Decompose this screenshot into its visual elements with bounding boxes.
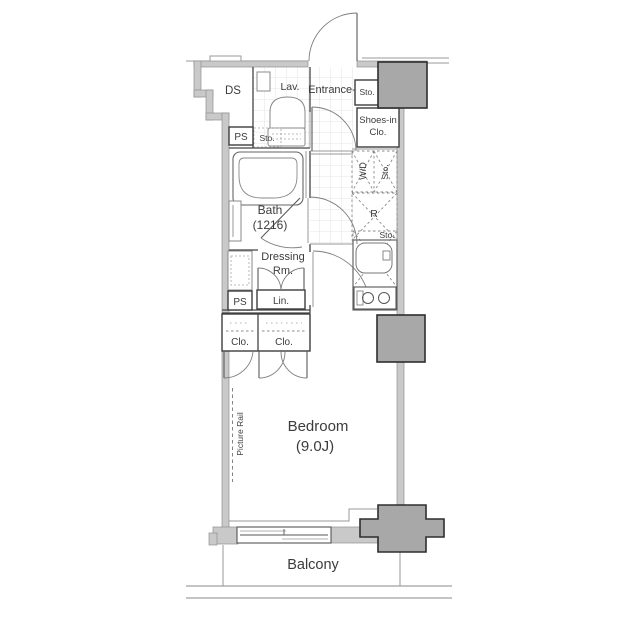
- stove-icon: [354, 287, 396, 309]
- label-closet-right: Clo.: [275, 337, 293, 348]
- bathtub-icon: [233, 152, 303, 205]
- label-ps-upper: PS: [234, 132, 248, 143]
- lav-shelf: [257, 72, 270, 91]
- floorplan-svg: DS PS Lav. Sto. Entrance- Sto. Shoes-in …: [0, 0, 640, 639]
- label-balcony: Balcony: [287, 557, 339, 573]
- label-linen: Lin.: [273, 296, 289, 307]
- label-shoes-line1: Shoes-in: [359, 115, 397, 126]
- label-dressing-line1: Dressing: [261, 251, 304, 263]
- label-bedroom-line2: (9.0J): [296, 438, 334, 455]
- pillar-top-right: [378, 62, 427, 108]
- label-wd-sto: Sto.: [380, 164, 390, 179]
- label-picture-rail: Picture Rail: [235, 412, 245, 456]
- label-bath-line1: Bath: [258, 203, 283, 217]
- label-entrance-sto: Sto.: [359, 87, 374, 97]
- label-wd: W/D: [358, 162, 368, 180]
- pillar-mid-right: [377, 315, 425, 362]
- label-bath-line2: (1216): [253, 218, 288, 232]
- label-shoes-line2: Clo.: [370, 127, 387, 138]
- label-ps-mid: PS: [233, 297, 247, 308]
- label-dressing-line2: Rm.: [273, 265, 293, 277]
- label-lav: Lav.: [280, 81, 299, 93]
- label-lav-sto: Sto.: [259, 133, 274, 143]
- label-kitchen-sto: Sto.: [379, 230, 394, 240]
- label-ds: DS: [225, 85, 241, 97]
- washer-space: [228, 251, 252, 290]
- bath-counter: [229, 201, 241, 241]
- label-bedroom-line1: Bedroom: [288, 418, 349, 435]
- label-fridge: R: [370, 208, 378, 220]
- label-closet-left: Clo.: [231, 337, 249, 348]
- label-entrance: Entrance-: [308, 84, 356, 96]
